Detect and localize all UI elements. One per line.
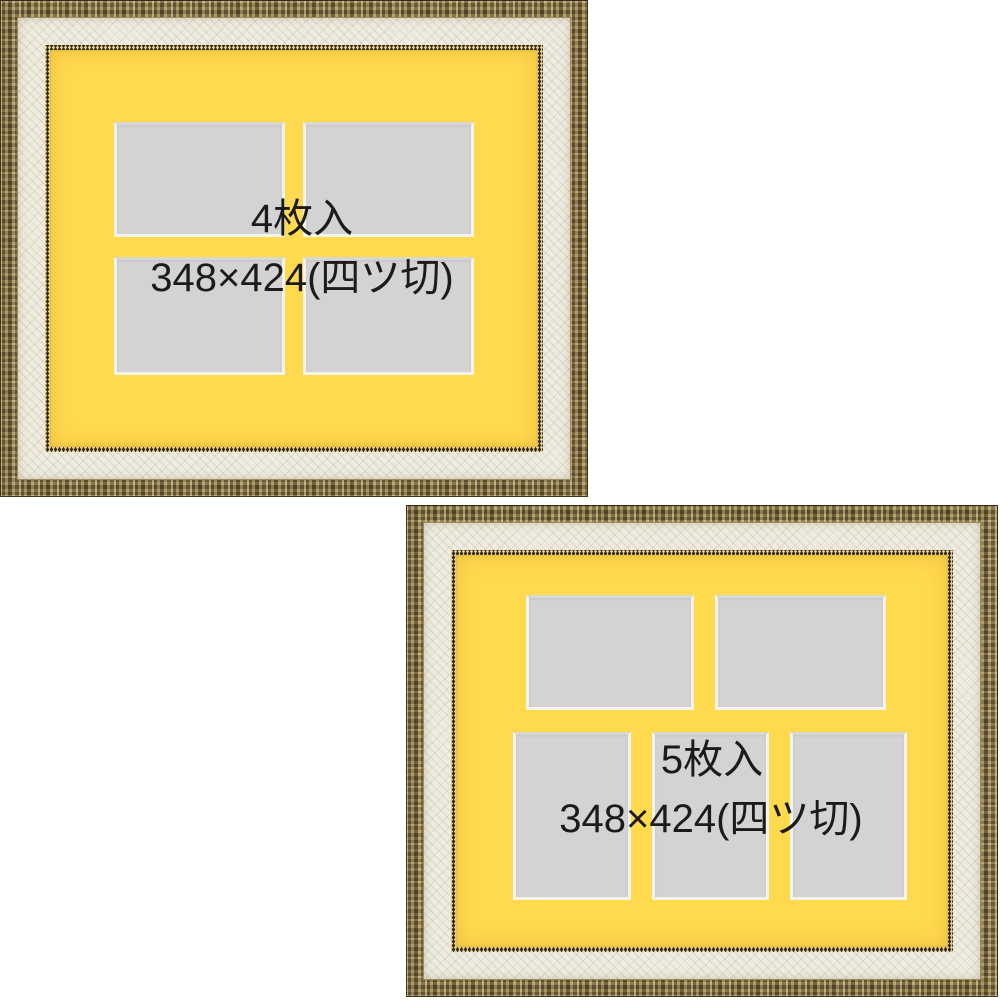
frame-5-pack: 5枚入 348×424(四ツ切) [406, 505, 998, 997]
photo-opening [526, 595, 694, 710]
caption-size: 348×424(四ツ切) [150, 258, 453, 298]
frame-4-pack: 4枚入 348×424(四ツ切) [0, 0, 588, 497]
product-image: 4枚入 348×424(四ツ切) 5枚入 348×424(四ツ切) [0, 0, 1000, 1000]
caption-count: 5枚入 [661, 740, 763, 780]
photo-opening [715, 595, 886, 710]
caption-size: 348×424(四ツ切) [559, 799, 862, 839]
yellow-mat-board: 5枚入 348×424(四ツ切) [456, 555, 948, 947]
caption-count: 4枚入 [251, 199, 353, 239]
yellow-mat-board: 4枚入 348×424(四ツ切) [50, 50, 538, 447]
